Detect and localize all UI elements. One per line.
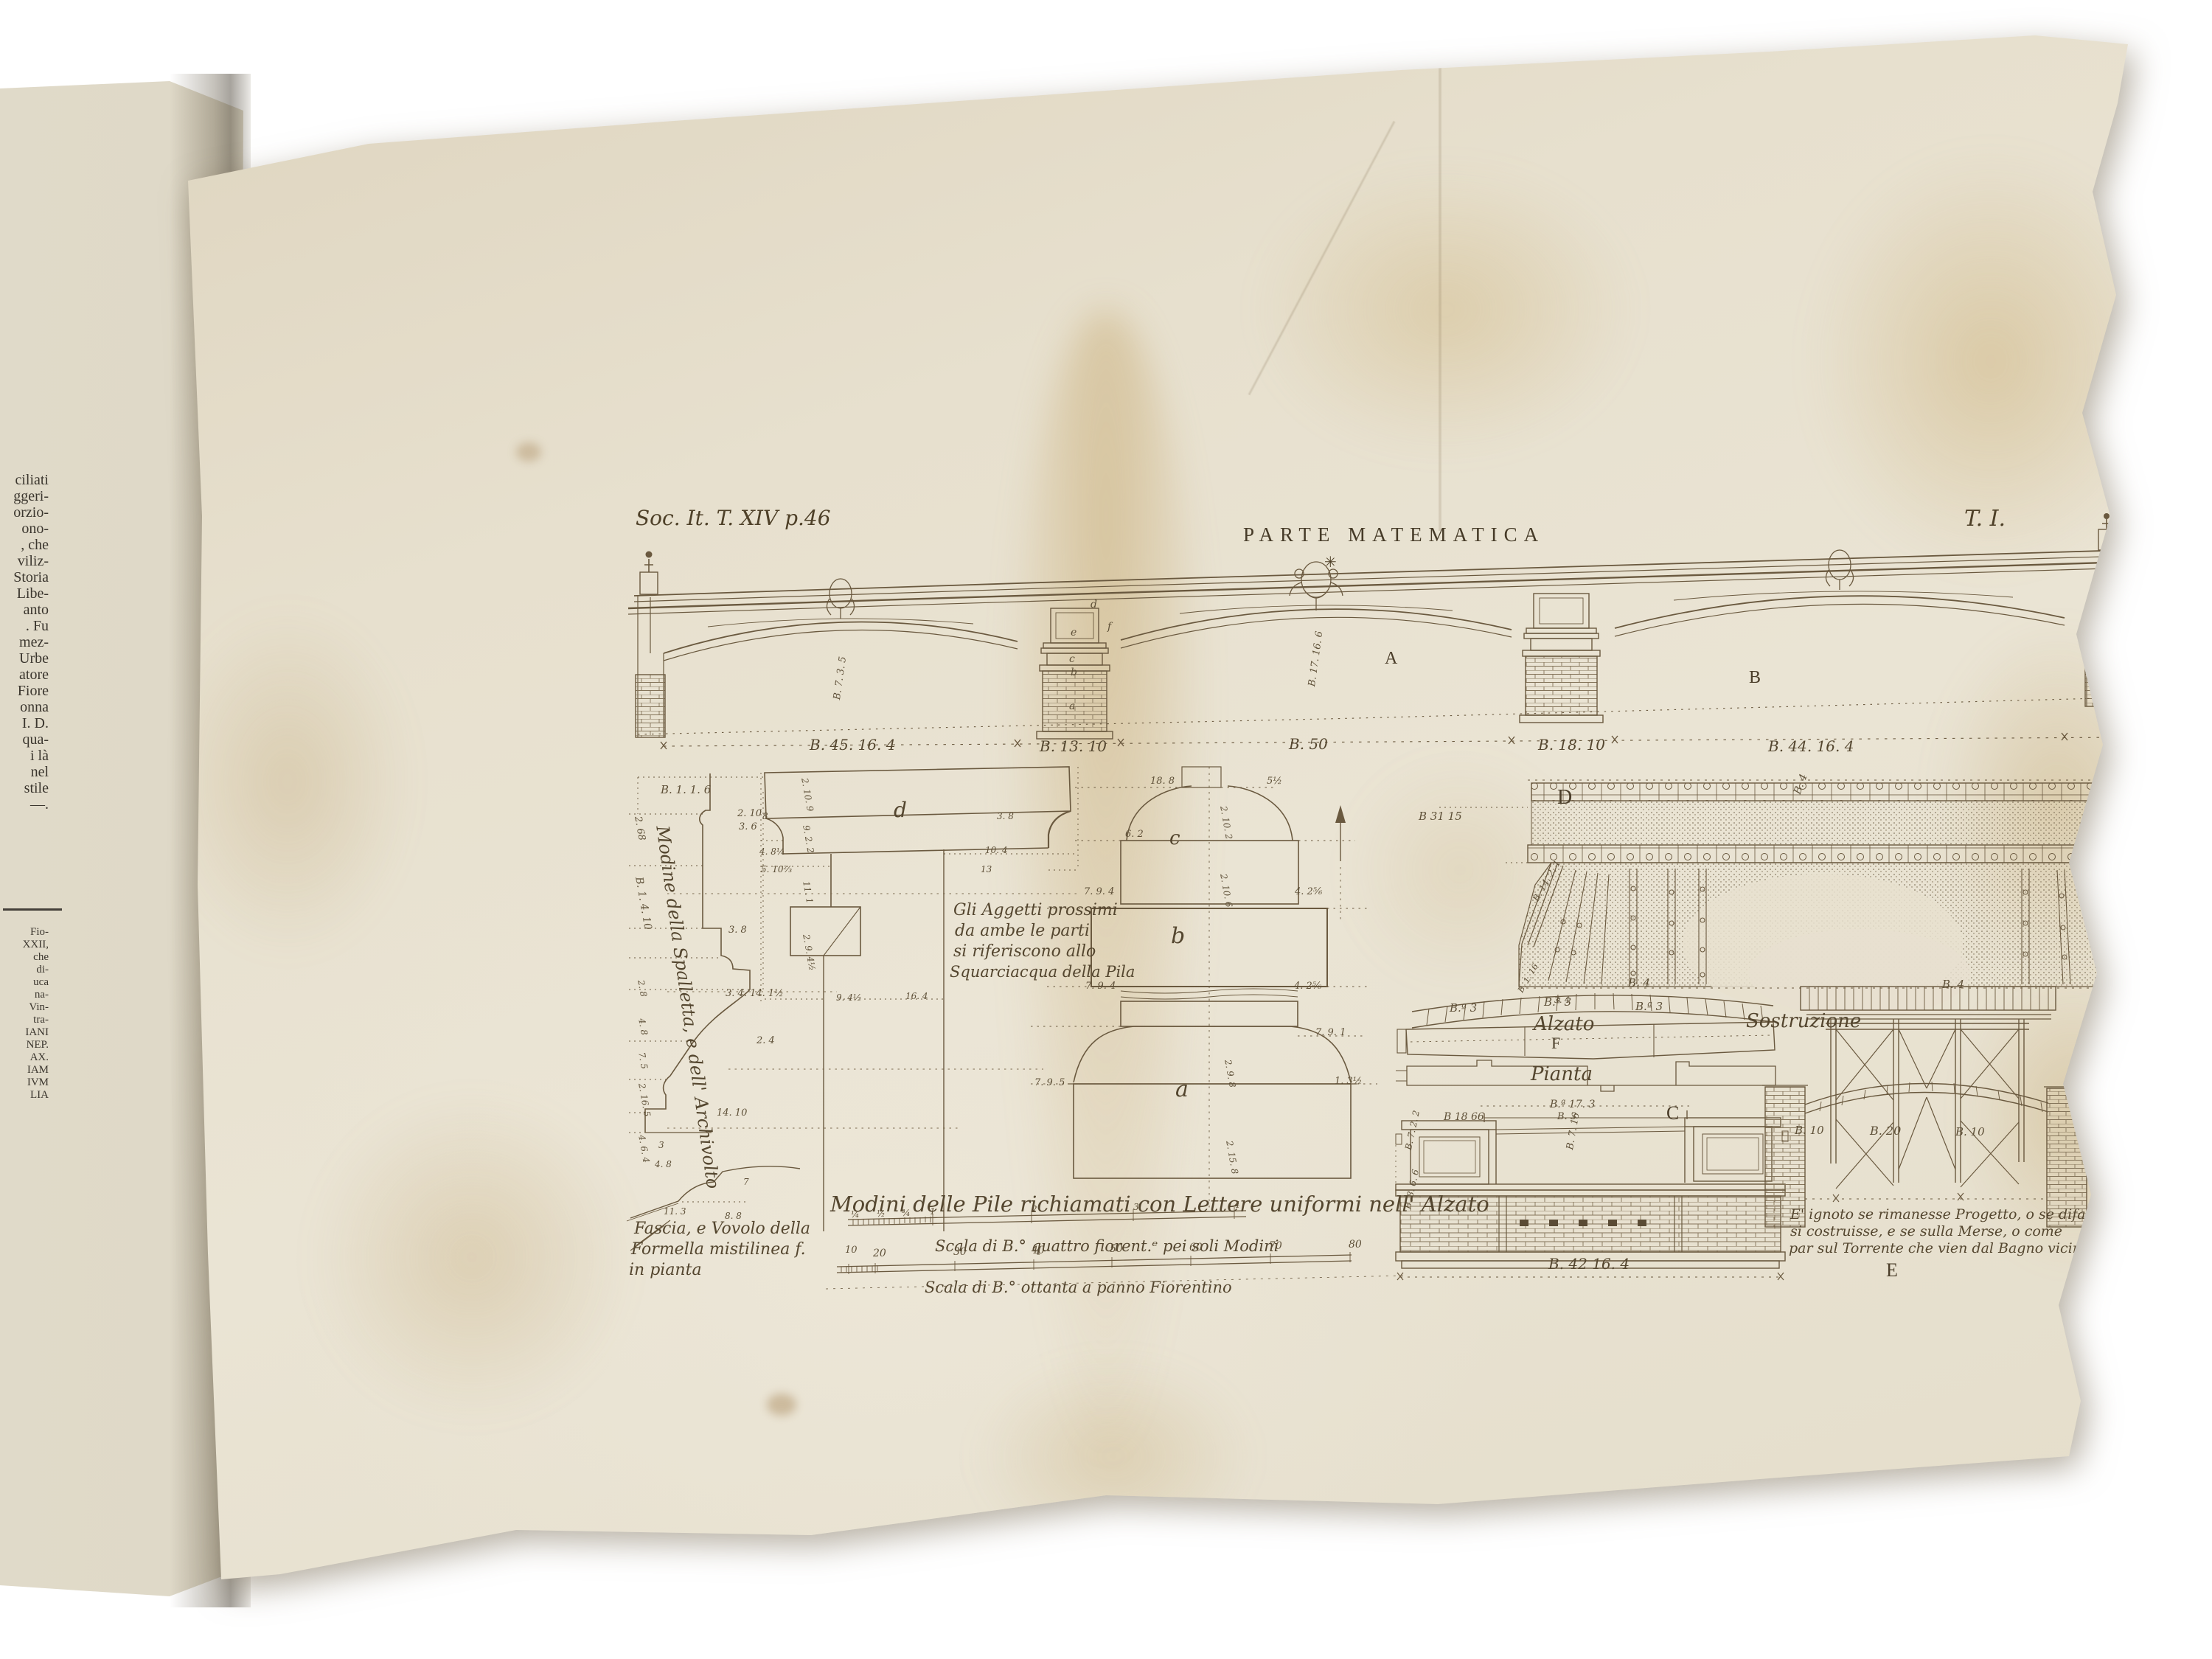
pier-letter: f	[1107, 621, 1111, 633]
detail-dim: 11. 1	[801, 880, 815, 905]
pile-letter: a	[1175, 1077, 1189, 1102]
photographed-plate: ciliatiggeri-orzio-ono-, cheviliz-Storia…	[0, 0, 2212, 1659]
bridge-span-dim: B. 45. 16. 4	[810, 736, 895, 754]
scale2-tick: 80	[1349, 1239, 1362, 1251]
bridge-letter: B	[1749, 668, 1762, 688]
aggetti-note: si riferiscono allo	[953, 942, 1096, 961]
detail-dim: 4. 8	[655, 1159, 672, 1169]
detail-dim: 4. 2⅚	[1295, 886, 1322, 897]
scale1-tick: ½	[877, 1208, 886, 1219]
scale1-caption: Scala di B.° quattro fiorent.ᵉ pei soli …	[935, 1237, 1279, 1255]
pier-letter: c	[1069, 653, 1075, 665]
pierc-letter: C	[1666, 1102, 1680, 1124]
detail-dim: 7. 9. 4	[1085, 981, 1116, 992]
voussoir-dim: B.ª 3	[1544, 995, 1571, 1009]
voussoir-dim: B.ª 3	[1635, 1000, 1663, 1013]
pier-letter: d	[1091, 599, 1097, 611]
detail-dim: 2. 9. 4½	[801, 933, 817, 971]
scale1-tick: 2	[1032, 1204, 1037, 1214]
pier-letter: b	[1071, 667, 1077, 678]
detail-dim: B. 1. 4. 10	[633, 876, 653, 931]
detail-dim: B. 1. 16	[1516, 962, 1540, 995]
plate-sheet: Soc. It. T. XIV p.46 PARTE MATEMATICA ✳ …	[0, 0, 2212, 1659]
detail-dim: 7. 9. 5	[1034, 1077, 1065, 1088]
detail-dim: 2. 68	[632, 815, 647, 841]
detail-dim: 8	[762, 811, 768, 821]
cornice-letter: d	[894, 798, 907, 822]
pile-letter: b	[1171, 923, 1185, 949]
pierc-dim: B. 42 16. 4	[1548, 1255, 1630, 1273]
bridge-dim: B. 17. 16. 6	[1307, 630, 1325, 687]
detail-dim: 2. 10	[737, 808, 762, 819]
bridge-pier-dim: B. 13. 10	[1040, 737, 1107, 755]
detail-dim: B 18 66	[1444, 1111, 1484, 1123]
bridge-pier-dim: B. 18. 10	[1538, 736, 1605, 754]
bridge-span-dim: B. 50	[1289, 735, 1328, 753]
pile-letter: c	[1169, 827, 1180, 849]
detail-dim: 9. 4½	[836, 992, 862, 1003]
pianta-label: Pianta	[1531, 1063, 1593, 1085]
detail-dim: 7. 5	[636, 1051, 650, 1070]
truss-letter: E	[1886, 1259, 1899, 1281]
detail-dim: 7. 9. 4	[1084, 886, 1114, 897]
detail-dim: 3. 4. 14. 1½	[726, 988, 784, 999]
fascia-label: Fascia, e Vovolo della	[634, 1220, 810, 1238]
detail-dim: B. 4	[1628, 976, 1650, 990]
detail-dim: 3. 6	[739, 821, 757, 832]
detail-dim: 7. 9. 1	[1315, 1027, 1346, 1038]
detail-dim: 10. 4	[985, 845, 1008, 855]
truss-dim: B. 10	[1795, 1124, 1824, 1137]
alzato-letter: F	[1551, 1034, 1562, 1053]
detail-dim: 3. 8	[728, 925, 747, 936]
pier-letter: e	[1071, 627, 1077, 639]
pier-letter: a	[1069, 700, 1075, 712]
sostruzione-label: Sostruzione	[1746, 1010, 1861, 1032]
detail-dim: B. 4	[1792, 773, 1810, 796]
scale2-tick: 50	[1110, 1243, 1123, 1255]
detail-dim: 4. 6. 4	[636, 1134, 651, 1164]
sostruzione-letter: D	[1557, 786, 1573, 810]
detail-dim: 4. 8	[636, 1018, 650, 1036]
scale2-tick: 60	[1189, 1242, 1203, 1253]
scale1-tick: 4	[1234, 1200, 1240, 1210]
aggetti-note: Gli Aggetti prossimi	[953, 901, 1118, 919]
detail-dim: 2. 10. 6	[1218, 873, 1234, 908]
aggetti-note: Squarciacqua della Pila	[950, 963, 1135, 981]
detail-dim: 16. 4	[905, 991, 928, 1001]
detail-dim: B 31 15	[1419, 810, 1462, 823]
truss-dim: B. 20	[1870, 1124, 1901, 1138]
detail-dim: 13	[981, 864, 992, 874]
detail-dim: 3	[658, 1140, 664, 1150]
detail-dim: 2. 10. 9	[799, 777, 815, 813]
fascia-label: in pianta	[629, 1261, 702, 1279]
plate-sheet-wrap: Soc. It. T. XIV p.46 PARTE MATEMATICA ✳ …	[0, 0, 2212, 1659]
truss-note: E' ignoto se rimanesse Progetto, o se di…	[1790, 1206, 2105, 1222]
scale1-tick: ¾	[902, 1208, 911, 1218]
detail-dim: 2. 16. 5	[636, 1082, 653, 1118]
detail-dim: B.ª 17. 3	[1550, 1099, 1595, 1110]
detail-dim: 7	[743, 1177, 749, 1187]
detail-dim: 4. 8¼	[759, 846, 785, 857]
scale2-tick: 40	[1032, 1245, 1045, 1256]
detail-dim: 1. 3½	[1335, 1076, 1362, 1087]
scale2-tick: 30	[953, 1246, 967, 1258]
detail-dim: B. 14. 2. 1	[1531, 858, 1562, 903]
scale2-caption: Scala di B.° ottanta a panno Fiorentino	[925, 1279, 1232, 1296]
alzato-label: Alzato	[1534, 1013, 1594, 1035]
aggetti-note: da ambe le parti	[955, 922, 1090, 940]
detail-dim: 2. 4	[757, 1035, 775, 1046]
detail-dim: 2. 15. 8	[1224, 1140, 1240, 1175]
detail-dim: 2. 8	[636, 979, 649, 998]
detail-dim: 2. 10. 2	[1218, 805, 1234, 841]
detail-dim: 2. 9. 8	[1222, 1059, 1237, 1088]
scale1-tick: ¼	[851, 1209, 860, 1220]
bridge-letter: A	[1385, 649, 1399, 669]
scale1-tick: 1	[930, 1206, 936, 1217]
bridge-dim: B. 7. 3. 5	[832, 655, 849, 700]
detail-dim: 3. 8	[997, 811, 1014, 821]
detail-dim: 14. 10	[717, 1107, 747, 1119]
detail-dim: 18. 8	[1150, 776, 1175, 787]
detail-dim: 5. 10⅔	[761, 864, 792, 874]
detail-dim: B. 7. 2. 2	[1403, 1110, 1422, 1151]
voussoir-dim: B.ª 3	[1450, 1001, 1477, 1015]
scale1-tick: 3	[1133, 1202, 1139, 1212]
truss-note: si costruisse, e se sulla Merse, o come	[1790, 1223, 2062, 1239]
annotation-layer: B. 45. 16. 4B. 13. 10B. 50B. 18. 10B. 44…	[0, 0, 2212, 1659]
scale2-tick: 10	[845, 1245, 858, 1256]
detail-dim: B. 1. 1. 6	[661, 783, 711, 796]
spalletta-label: Modine della Spalletta, e dell' Archivol…	[652, 824, 723, 1190]
scale2-tick: 20	[873, 1248, 886, 1259]
truss-note: par sul Torrente che vien dal Bagno vici…	[1789, 1240, 2090, 1256]
detail-dim: 4. 2⅚	[1294, 981, 1321, 992]
truss-dim: B. 10	[1955, 1125, 1985, 1138]
detail-dim: 6. 2	[1125, 829, 1144, 840]
detail-dim: B. 4	[1942, 978, 1964, 991]
detail-dim: 11. 3	[664, 1206, 686, 1217]
detail-dim: 9. 2. 2	[801, 824, 815, 854]
bridge-span-dim: B. 44. 16. 4	[1768, 737, 1854, 755]
fascia-label: Formella mistilinea f.	[631, 1240, 806, 1259]
detail-dim: 5½	[1267, 776, 1282, 787]
scale2-tick: 70	[1269, 1240, 1282, 1252]
